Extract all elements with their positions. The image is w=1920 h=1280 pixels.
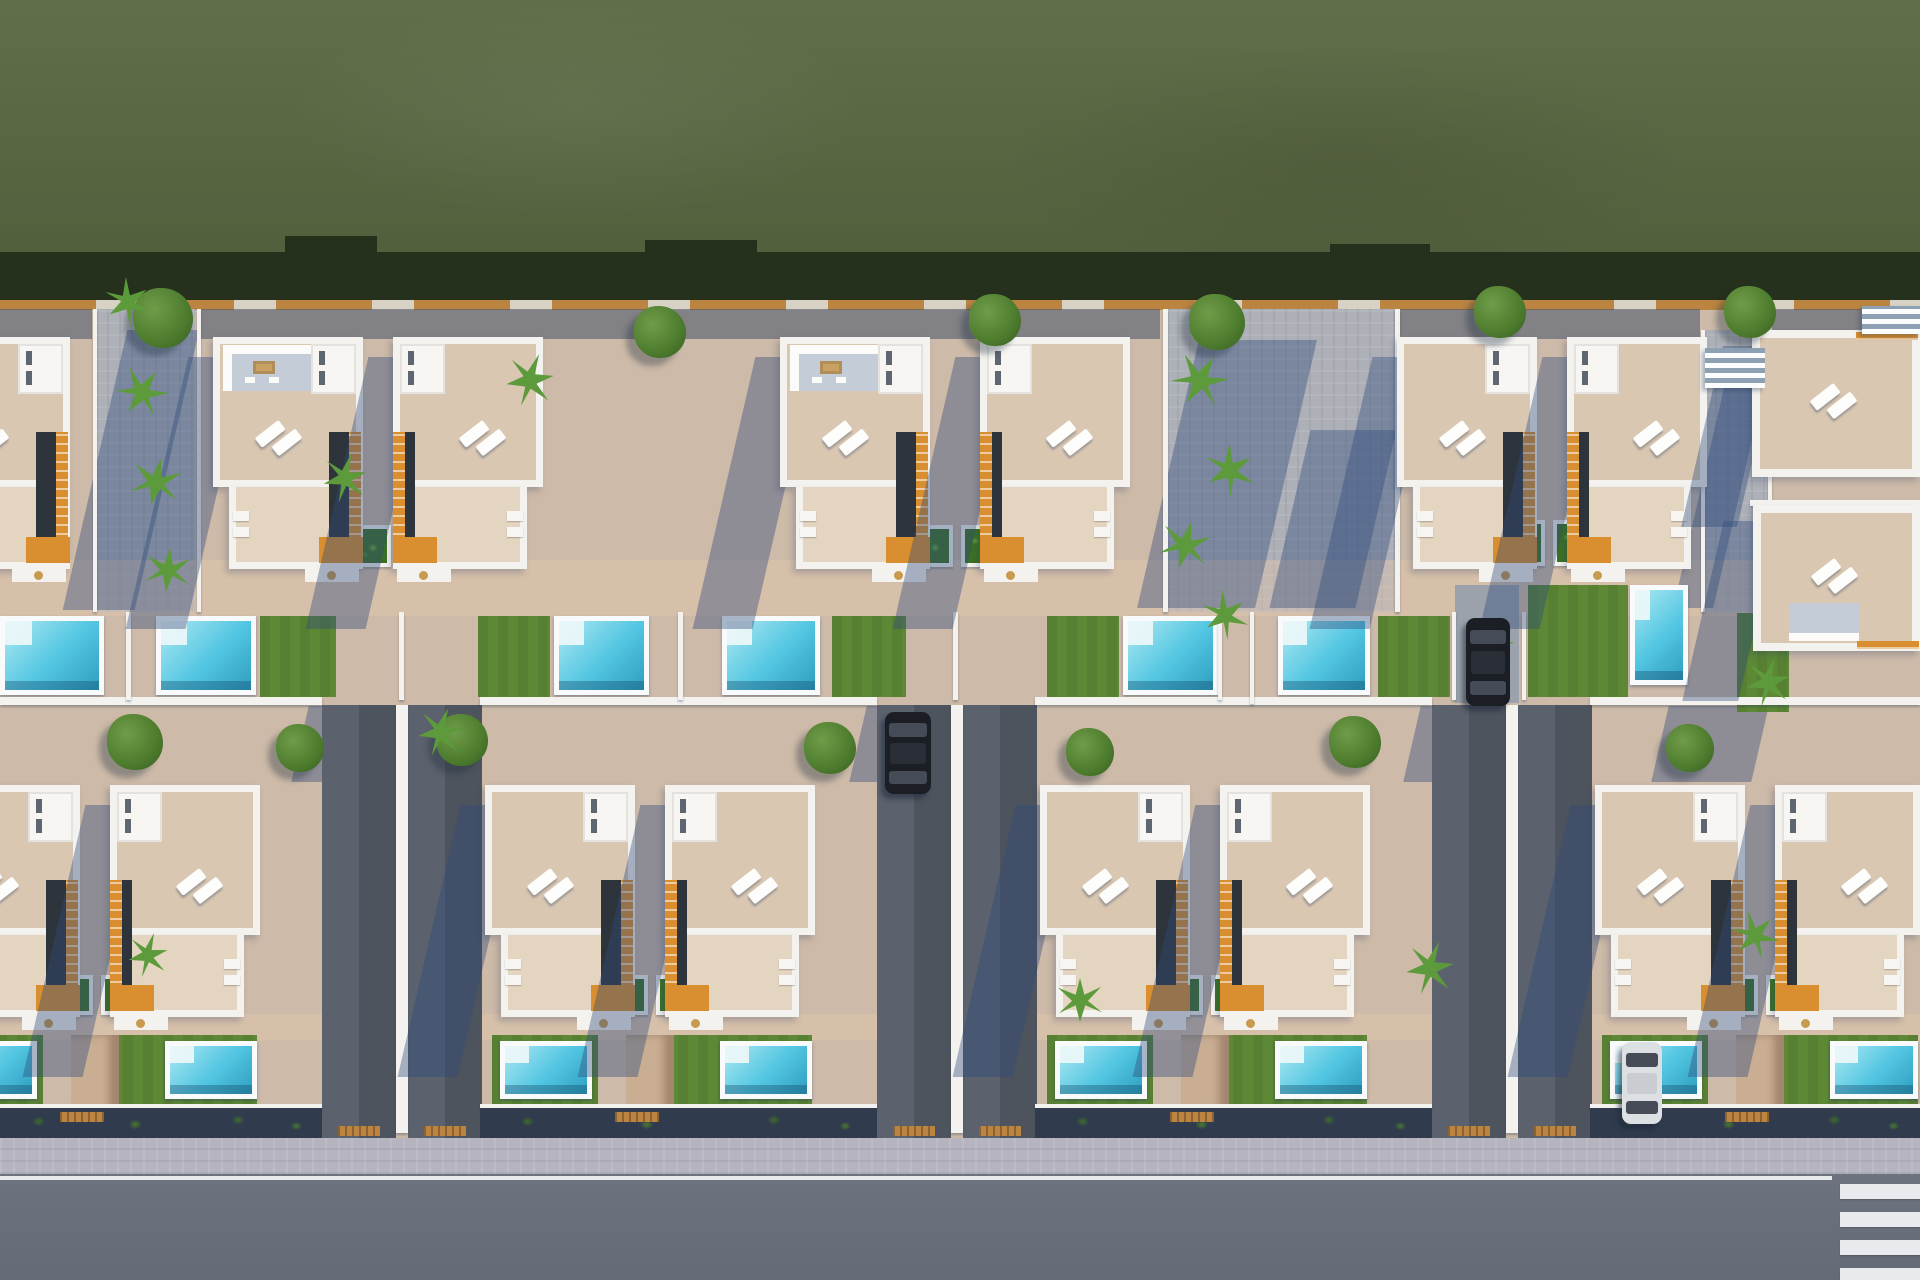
pool-shade	[559, 681, 644, 690]
pool-shade	[1635, 671, 1683, 680]
ac-unit	[1417, 511, 1433, 521]
stair-landing	[1220, 985, 1264, 1011]
kitchen-chair	[812, 377, 822, 383]
ac-unit	[1060, 975, 1076, 985]
window-slit	[319, 371, 325, 385]
window-slit	[1493, 371, 1499, 385]
window-slit	[680, 819, 686, 833]
tree-canopy	[1066, 728, 1114, 776]
lawn-patch	[1378, 616, 1450, 697]
mid-boundary-wall	[1590, 697, 1920, 705]
gate-timber-mat	[1725, 1112, 1769, 1122]
stair-landing	[26, 537, 70, 563]
window-slit	[319, 351, 325, 365]
rooftop-utility-room	[117, 792, 162, 842]
crosswalk-stripe	[1840, 1184, 1920, 1199]
gate-timber-mat	[60, 1112, 104, 1122]
kitchen-counter	[790, 345, 878, 354]
tree-canopy	[276, 724, 324, 772]
ac-unit	[505, 959, 521, 969]
kitchen-chair	[245, 377, 255, 383]
window-slit	[886, 371, 892, 385]
street-hedge	[1035, 1108, 1432, 1138]
ac-unit	[224, 975, 240, 985]
kitchen-counter	[790, 345, 799, 391]
stair-landing	[665, 985, 709, 1011]
pool-step	[1283, 621, 1307, 645]
pool-shade	[1283, 681, 1365, 690]
tree-canopy	[634, 306, 686, 358]
mid-boundary-wall	[0, 697, 322, 705]
swimming-pool	[720, 1041, 812, 1099]
entry-door-mat	[136, 1019, 145, 1028]
pool-shade	[1835, 1085, 1913, 1094]
kitchen-table	[820, 361, 842, 374]
rooftop-utility-room	[987, 344, 1032, 394]
rear-patio-shadow	[1400, 309, 1700, 339]
window-slit	[26, 371, 32, 385]
window-slit	[125, 819, 131, 833]
grass-shadow-bump	[645, 240, 757, 256]
plot-divider-wall	[399, 612, 404, 700]
swimming-pool	[1123, 616, 1218, 695]
window-slit	[1235, 819, 1241, 833]
window-slit	[1235, 799, 1241, 813]
black-car	[885, 712, 931, 794]
rooftop-utility-room	[878, 344, 923, 394]
window-slit	[1701, 799, 1707, 813]
kitchen-counter	[223, 345, 311, 354]
rooftop-utility-room	[18, 344, 63, 394]
pool-step	[1280, 1046, 1304, 1063]
rooftop-utility-room	[1782, 792, 1827, 842]
pool-shade	[5, 681, 99, 690]
driveway-gate-mat	[893, 1126, 935, 1136]
window-slit	[995, 371, 1001, 385]
window-slit	[26, 351, 32, 365]
asphalt-road	[0, 1174, 1920, 1280]
tree-canopy	[1329, 716, 1381, 768]
ac-unit	[1884, 959, 1900, 969]
ac-unit	[1060, 959, 1076, 969]
window-slit	[1582, 351, 1588, 365]
ac-unit	[1417, 527, 1433, 537]
tree-canopy	[1724, 286, 1776, 338]
ac-unit	[1094, 527, 1110, 537]
gate-timber-mat	[1170, 1112, 1214, 1122]
white-car	[1622, 1042, 1662, 1124]
driveway-gate-mat	[1448, 1126, 1490, 1136]
kitchen-table	[253, 361, 275, 374]
sidewalk	[0, 1138, 1920, 1174]
window-slit	[408, 371, 414, 385]
entry-door-mat	[419, 571, 428, 580]
window-slit	[1582, 371, 1588, 385]
pool-shade	[170, 1085, 252, 1094]
window-slit	[125, 799, 131, 813]
ac-unit	[779, 959, 795, 969]
rooftop-utility-room	[1138, 792, 1183, 842]
plot-divider-wall	[93, 309, 97, 612]
pool-shade	[0, 1085, 32, 1094]
ac-unit	[233, 527, 249, 537]
window-slit	[591, 799, 597, 813]
driveway-gate-mat	[338, 1126, 380, 1136]
rooftop-utility-room	[1693, 792, 1738, 842]
window-slit	[36, 799, 42, 813]
pool-shade	[505, 1085, 587, 1094]
driveway-lane	[1432, 705, 1506, 1138]
plot-divider-wall	[1452, 612, 1456, 700]
stair-landing	[393, 537, 437, 563]
grass-field	[0, 0, 1920, 276]
ac-unit	[800, 527, 816, 537]
swimming-pool	[1630, 585, 1688, 685]
swimming-pool	[554, 616, 649, 695]
rooftop-utility-room	[672, 792, 717, 842]
plot-divider-wall	[1163, 309, 1168, 612]
ac-unit	[1615, 975, 1631, 985]
driveway-gate-mat	[424, 1126, 466, 1136]
tree-canopy	[969, 294, 1021, 346]
pool-shade	[161, 681, 251, 690]
entry-door-mat	[1246, 1019, 1255, 1028]
window-slit	[1493, 351, 1499, 365]
pool-shade	[1060, 1085, 1142, 1094]
kitchen-counter	[1789, 633, 1859, 641]
pool-step	[505, 1046, 529, 1063]
black-car	[1466, 618, 1510, 706]
entry-door-mat	[894, 571, 903, 580]
lawn-patch	[1047, 616, 1119, 697]
ac-unit	[507, 511, 523, 521]
lawn-patch	[478, 616, 550, 697]
grass-shadow-bump	[285, 236, 377, 256]
ac-unit	[505, 975, 521, 985]
louvered-bridge	[1705, 348, 1765, 388]
stair-landing	[980, 537, 1024, 563]
road-edge-line	[0, 1176, 1832, 1180]
swimming-pool	[1275, 1041, 1367, 1099]
rooftop-utility-room	[311, 344, 356, 394]
aerial-render-scene	[0, 0, 1920, 1280]
ac-unit	[233, 511, 249, 521]
plot-divider-wall	[678, 612, 683, 700]
plot-divider-wall	[1218, 612, 1222, 700]
pool-step	[559, 621, 584, 645]
external-stair	[1862, 306, 1920, 334]
kitchen-counter	[223, 345, 232, 391]
pool-step	[1060, 1046, 1084, 1063]
pool-shade	[1128, 681, 1213, 690]
crosswalk-stripe	[1840, 1212, 1920, 1227]
pool-step	[1128, 621, 1153, 645]
street-hedge	[0, 1108, 322, 1138]
pool-shade	[727, 681, 815, 690]
stair-landing	[110, 985, 154, 1011]
kitchen-chair	[269, 377, 279, 383]
entry-door-mat	[1801, 1019, 1810, 1028]
swimming-pool	[1830, 1041, 1918, 1099]
window-slit	[995, 351, 1001, 365]
timber-pergola	[1857, 641, 1919, 649]
pool-step	[5, 621, 32, 645]
window-slit	[1146, 819, 1152, 833]
crosswalk-stripe	[1840, 1240, 1920, 1255]
swimming-pool	[165, 1041, 257, 1099]
pool-step	[1635, 590, 1650, 620]
driveway-lane	[322, 705, 396, 1138]
window-slit	[1146, 799, 1152, 813]
entry-door-mat	[34, 571, 43, 580]
pool-shade	[725, 1085, 807, 1094]
window-slit	[408, 351, 414, 365]
ac-unit	[1094, 511, 1110, 521]
rooftop-utility-room	[1574, 344, 1619, 394]
rooftop-utility-room	[1227, 792, 1272, 842]
window-slit	[1701, 819, 1707, 833]
ac-unit	[507, 527, 523, 537]
window-slit	[1790, 799, 1796, 813]
entry-door-mat	[1593, 571, 1602, 580]
ac-unit	[779, 975, 795, 985]
rooftop-utility-room	[583, 792, 628, 842]
stair-landing	[1567, 537, 1611, 563]
swimming-pool	[0, 616, 104, 695]
pool-step	[725, 1046, 749, 1063]
tree-canopy	[107, 714, 163, 770]
street-hedge	[480, 1108, 877, 1138]
rooftop-utility-room	[400, 344, 445, 394]
kitchen-chair	[836, 377, 846, 383]
window-slit	[1790, 819, 1796, 833]
tree-canopy	[1189, 294, 1245, 350]
rooftop-utility-room	[1485, 344, 1530, 394]
ac-unit	[1671, 527, 1687, 537]
tree-canopy	[1474, 286, 1526, 338]
pool-step	[170, 1046, 194, 1063]
ac-unit	[1334, 975, 1350, 985]
mid-boundary-wall	[1035, 697, 1432, 705]
entry-door-mat	[1006, 571, 1015, 580]
pool-step	[1835, 1046, 1858, 1063]
plot-divider-wall	[1250, 612, 1254, 704]
ac-unit	[1334, 959, 1350, 969]
entry-door-mat	[691, 1019, 700, 1028]
rear-patio-shadow	[0, 309, 92, 339]
grass-shadow-bump	[1330, 244, 1430, 258]
gate-timber-mat	[615, 1112, 659, 1122]
window-slit	[591, 819, 597, 833]
window-slit	[680, 799, 686, 813]
tree-canopy	[804, 722, 856, 774]
driveway-gate-mat	[1534, 1126, 1576, 1136]
driveway-gate-mat	[979, 1126, 1021, 1136]
rooftop-utility-room	[28, 792, 73, 842]
plot-divider-wall	[953, 612, 958, 700]
ac-unit	[1884, 975, 1900, 985]
ac-unit	[224, 959, 240, 969]
ac-unit	[800, 511, 816, 521]
pool-shade	[1280, 1085, 1362, 1094]
window-slit	[886, 351, 892, 365]
tree-canopy	[1666, 724, 1714, 772]
crosswalk-stripe	[1840, 1268, 1920, 1280]
stair-landing	[1775, 985, 1819, 1011]
window-slit	[36, 819, 42, 833]
tree-canopy	[133, 288, 193, 348]
ac-unit	[1615, 959, 1631, 969]
